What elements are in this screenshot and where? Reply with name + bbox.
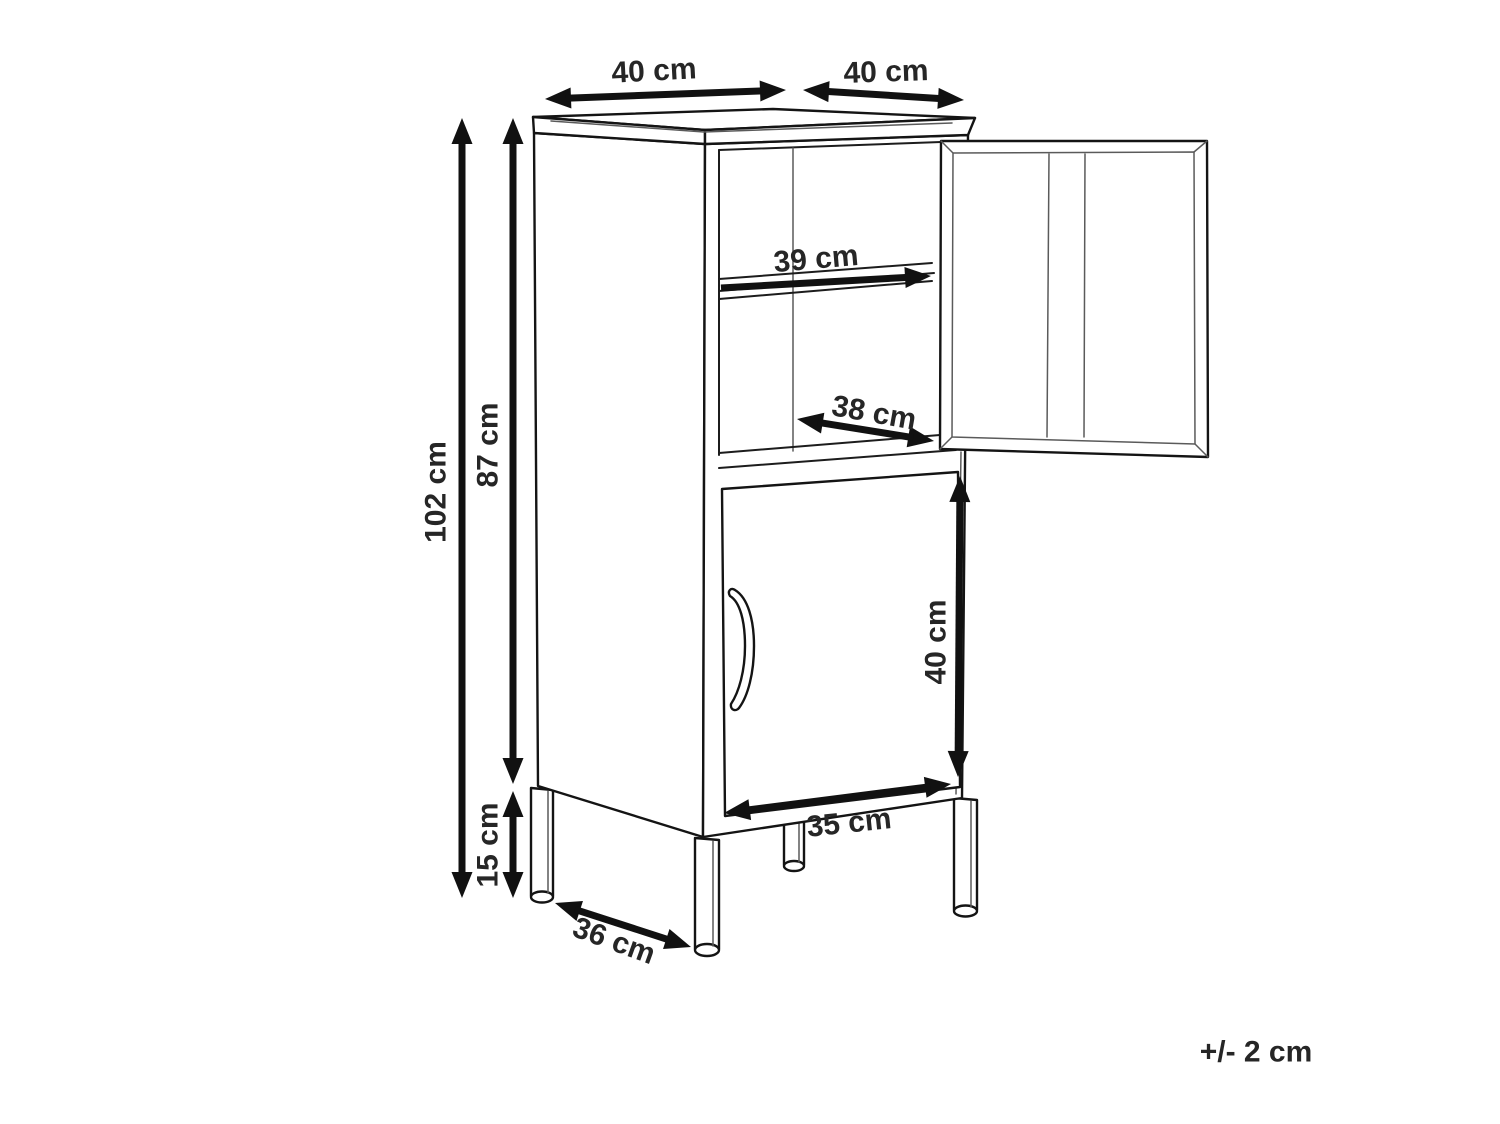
arrow-total-height [452,118,473,898]
cabinet-dimension-diagram: 40 cm 40 cm 102 cm 87 cm 15 cm 39 cm 38 … [0,0,1500,1124]
cabinet-side-panel [534,133,705,837]
dim-label-door-height: 40 cm [920,599,953,684]
dim-label-total-height: 102 cm [420,441,453,543]
tolerance-note: +/- 2 cm [1200,1036,1313,1069]
leg-back-left [531,788,553,903]
diagram-canvas: 40 cm 40 cm 102 cm 87 cm 15 cm 39 cm 38 … [0,0,1500,1124]
dim-label-body-height: 87 cm [472,402,505,487]
open-door [940,141,1208,457]
dim-label-leg-height: 15 cm [472,802,505,887]
leg-front-left [695,838,719,956]
arrow-body-height [503,118,524,784]
arrow-leg-height [503,791,524,898]
leg-front-right [954,798,977,917]
leg-back-right [784,818,804,871]
dim-label-top-depth: 40 cm [611,52,698,89]
dim-label-top-width: 40 cm [843,54,929,90]
